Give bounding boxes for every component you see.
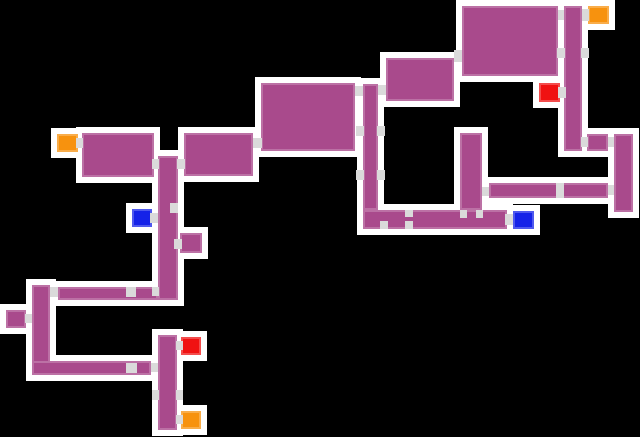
room-c [386,58,454,101]
marker-orange-west [57,134,78,152]
door-notch-10 [152,287,159,296]
door-notch-5 [150,213,158,223]
door-notch-7 [126,287,136,297]
door-notch-18 [378,85,386,95]
door-notch-32 [556,183,564,191]
door-notch-26 [581,48,589,58]
door-notch-1 [152,159,159,169]
door-notch-24 [558,10,564,20]
game-area-map [0,0,640,437]
room-d [462,6,558,76]
door-notch-21 [356,170,364,180]
door-notch-19 [356,126,364,136]
door-notch-3 [253,138,262,148]
door-notch-36 [476,210,483,218]
door-notch-38 [405,221,413,229]
door-notch-22 [377,170,385,180]
door-notch-16 [176,415,183,424]
door-notch-2 [177,159,185,169]
cell-f2 [587,134,608,151]
corridor-r [158,335,177,430]
room-side-m [180,233,202,253]
door-notch-28 [582,9,589,21]
door-notch-40 [505,214,513,225]
door-notch-29 [581,137,588,147]
door-notch-20 [377,126,385,136]
marker-red-top-right [539,83,560,102]
room-a1 [82,133,154,177]
marker-orange-top-right [588,6,609,24]
door-notch-27 [558,87,566,98]
marker-orange-bottom [181,411,201,429]
corridor-f [564,6,582,151]
door-notch-14 [176,390,183,400]
door-notch-35 [460,210,467,218]
marker-blue-left [132,209,152,227]
door-notch-33 [556,191,564,198]
door-notch-23 [454,50,462,62]
corridor-i [489,183,608,198]
door-notch-11 [126,363,137,373]
door-notch-30 [608,137,614,147]
door-notch-9 [25,314,32,323]
door-notch-12 [151,363,158,372]
room-p [6,310,26,328]
corridor-j [614,134,633,212]
marker-blue-right [513,211,534,229]
room-a3 [184,133,253,176]
door-notch-13 [152,390,159,400]
room-b [261,83,355,151]
marker-red-bottom [181,337,201,355]
door-notch-31 [608,185,614,195]
door-notch-39 [405,210,413,217]
corridor-k [460,133,482,210]
corridor-a-vertical [158,156,178,300]
door-notch-37 [380,221,388,229]
corridor-n [58,287,158,300]
door-notch-15 [176,341,183,350]
door-notch-25 [557,48,565,58]
door-notch-0 [76,138,83,148]
door-notch-17 [355,86,363,96]
door-notch-8 [50,287,58,297]
corridor-e [363,84,378,210]
door-notch-34 [482,187,489,196]
door-notch-6 [174,239,182,249]
door-notch-4 [170,203,178,213]
